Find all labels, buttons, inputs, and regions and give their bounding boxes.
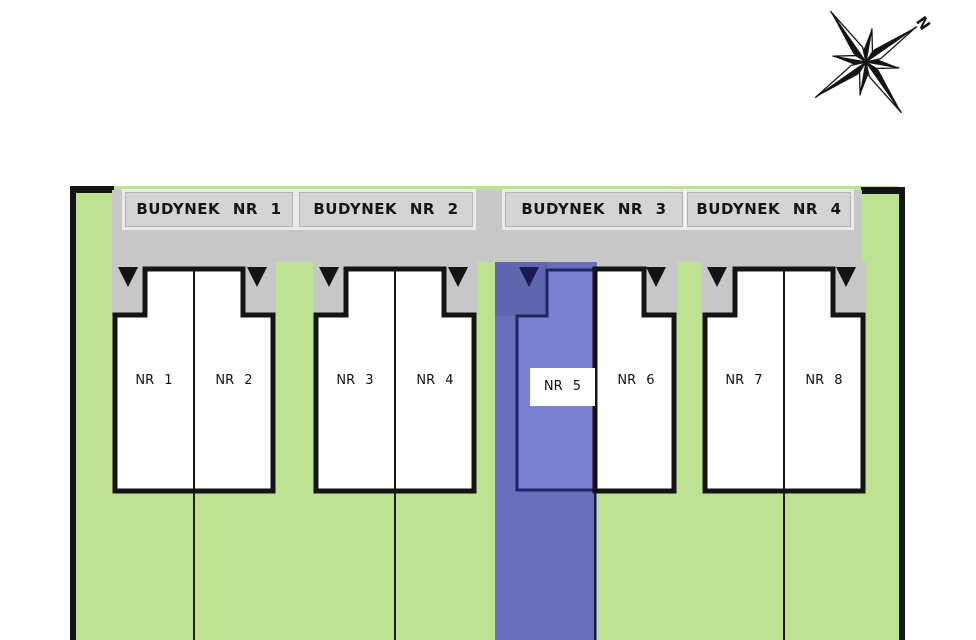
plot-border-right [899, 187, 905, 640]
entrance-marker-unit-1 [118, 267, 138, 287]
entrance-marker-unit-6 [646, 267, 666, 287]
unit-label-nr-4[interactable]: NR 4 [395, 371, 475, 391]
entrance-marker-unit-2 [247, 267, 267, 287]
building-2-name-plate: BUDYNEK NR 2 [299, 192, 473, 227]
compass-rose-icon: N [794, 0, 938, 134]
building-1-name-plate: BUDYNEK NR 1 [125, 192, 293, 227]
plot-border-left [70, 186, 76, 640]
building-4-name-plate: BUDYNEK NR 4 [687, 192, 851, 227]
compass-north-label: N [912, 13, 934, 34]
unit-label-nr-1[interactable]: NR 1 [114, 371, 194, 391]
unit-label-nr-8[interactable]: NR 8 [784, 371, 864, 391]
unit-label-nr-7[interactable]: NR 7 [704, 371, 784, 391]
unit-label-nr-6[interactable]: NR 6 [596, 371, 676, 391]
unit-label-nr-5[interactable]: NR 5 [530, 368, 595, 406]
entrance-marker-unit-5 [519, 267, 539, 287]
plot-divider-building-2 [394, 492, 396, 640]
entrance-marker-unit-8 [836, 267, 856, 287]
plot-border-top-right [861, 187, 905, 194]
building-3-name-plate: BUDYNEK NR 3 [505, 192, 683, 227]
plot-divider-building-1 [193, 492, 195, 640]
plot-divider-building-3 [594, 492, 596, 640]
site-plan-page: BUDYNEK NR 1 BUDYNEK NR 2 BUDYNEK NR 3 B… [0, 0, 976, 640]
entrance-marker-unit-4 [448, 267, 468, 287]
unit-label-nr-3[interactable]: NR 3 [315, 371, 395, 391]
entrance-marker-unit-7 [707, 267, 727, 287]
plot-divider-building-4 [783, 492, 785, 640]
plot-border-top-left [70, 186, 114, 193]
entrance-marker-unit-3 [319, 267, 339, 287]
unit-label-nr-2[interactable]: NR 2 [194, 371, 274, 391]
